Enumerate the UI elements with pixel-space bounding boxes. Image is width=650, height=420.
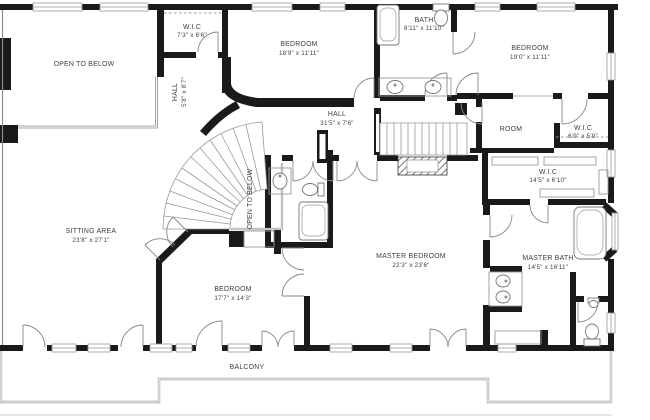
svg-text:22'3" x 23'6": 22'3" x 23'6" — [392, 262, 429, 269]
svg-text:BEDROOM: BEDROOM — [511, 45, 548, 52]
svg-text:BATH: BATH — [415, 17, 434, 24]
room-label-open-to-below-stair: OPEN TO BELOW — [247, 168, 254, 229]
svg-text:ROOM: ROOM — [500, 126, 522, 133]
svg-text:14'5" x 16'11": 14'5" x 16'11" — [528, 264, 568, 271]
double-sink-icon — [489, 272, 522, 306]
toilet-icon — [303, 183, 325, 196]
svg-text:7'3" x 6'6": 7'3" x 6'6" — [177, 32, 207, 39]
svg-text:23'8" x 27'1": 23'8" x 27'1" — [72, 237, 109, 244]
svg-text:OPEN TO BELOW: OPEN TO BELOW — [54, 61, 115, 68]
floor-plan-canvas: W.I.C 7'3" x 6'6" OPEN TO BELOW BEDROOM … — [0, 0, 650, 420]
svg-text:W.I.C: W.I.C — [183, 24, 201, 31]
toilet-icon — [584, 324, 600, 346]
toilet-icon — [433, 4, 449, 26]
room-label-wic-right-large: W.I.C 14'5" x 6'10" — [529, 169, 566, 184]
svg-text:BALCONY: BALCONY — [230, 364, 265, 371]
room-label-bedroom-top-left: BEDROOM 18'9" x 11'11" — [279, 41, 319, 57]
labels-layer: W.I.C 7'3" x 6'6" OPEN TO BELOW BEDROOM … — [54, 17, 598, 371]
svg-text:19'0" x 11'11": 19'0" x 11'11" — [510, 54, 550, 61]
svg-text:18'9" x 11'11": 18'9" x 11'11" — [279, 50, 319, 57]
open-to-below-railing — [18, 77, 157, 127]
svg-text:SITTING AREA: SITTING AREA — [66, 228, 117, 235]
room-label-wic-top: W.I.C 7'3" x 6'6" — [177, 24, 207, 39]
svg-text:31'5" x 7'6": 31'5" x 7'6" — [320, 120, 354, 127]
bathtub-icon — [574, 207, 606, 259]
svg-text:8'11" x 11'10": 8'11" x 11'10" — [404, 25, 444, 32]
room-label-sitting-area: SITTING AREA 23'8" x 27'1" — [66, 228, 117, 244]
bathtub-icon — [299, 202, 328, 240]
bathtub-icon — [377, 5, 399, 45]
svg-text:W.I.C: W.I.C — [539, 169, 557, 176]
room-label-balcony: BALCONY — [230, 364, 265, 371]
stair-hatch — [398, 157, 447, 175]
room-label-master-bedroom: MASTER BEDROOM 22'3" x 23'6" — [376, 253, 446, 269]
svg-text:W.I.C: W.I.C — [574, 125, 592, 132]
room-label-room: ROOM — [500, 126, 522, 133]
svg-text:17'7" x 14'3": 17'7" x 14'3" — [214, 295, 251, 302]
svg-text:OPEN TO BELOW: OPEN TO BELOW — [247, 168, 254, 229]
room-label-bedroom-lower: BEDROOM 17'7" x 14'3" — [214, 286, 251, 302]
svg-text:6'9" x 5'9": 6'9" x 5'9" — [568, 133, 598, 140]
svg-text:HALL: HALL — [328, 111, 346, 118]
room-label-master-bath: MASTER BATH 14'5" x 16'11" — [522, 255, 573, 271]
svg-text:14'5" x 6'10": 14'5" x 6'10" — [529, 177, 566, 184]
sink-icon — [588, 298, 599, 308]
svg-text:5'8" x 8'7": 5'8" x 8'7" — [181, 77, 188, 107]
room-label-bedroom-top-right: BEDROOM 19'0" x 11'11" — [510, 45, 550, 61]
cabinet-icon — [244, 157, 608, 344]
double-sink-icon — [379, 78, 451, 96]
room-label-wic-right-small: W.I.C 6'9" x 5'9" — [568, 125, 598, 140]
floor-plan-page: W.I.C 7'3" x 6'6" OPEN TO BELOW BEDROOM … — [0, 0, 650, 420]
balcony-outline — [0, 351, 612, 415]
room-label-hall-main: HALL 31'5" x 7'6" — [320, 111, 354, 127]
svg-text:MASTER BATH: MASTER BATH — [522, 255, 573, 262]
room-label-hall-upper: HALL 5'8" x 8'7" — [172, 77, 188, 107]
sink-icon — [269, 168, 291, 194]
svg-text:MASTER BEDROOM: MASTER BEDROOM — [376, 253, 446, 260]
svg-text:BEDROOM: BEDROOM — [214, 286, 251, 293]
svg-text:HALL: HALL — [172, 83, 179, 101]
room-label-open-to-below-top: OPEN TO BELOW — [54, 61, 115, 68]
svg-text:BEDROOM: BEDROOM — [280, 41, 317, 48]
stairs-straight-icon — [380, 123, 467, 155]
